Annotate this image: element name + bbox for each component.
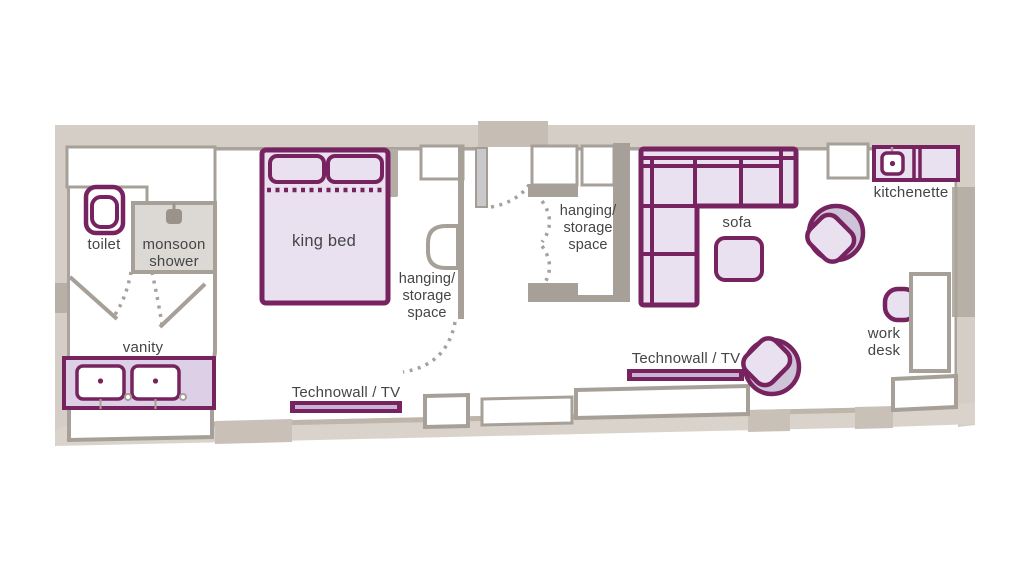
door-arc-dotted <box>114 272 131 316</box>
toilet-bowl <box>92 197 117 227</box>
entry-storage-label-2: storage <box>563 220 612 236</box>
technowall-stripe <box>632 373 739 377</box>
work-desk <box>911 274 949 371</box>
entry-living-wall <box>613 143 630 302</box>
desk-window <box>893 376 956 410</box>
technowall-living-label: Technowall / TV <box>632 350 741 367</box>
technowall-bedroom-label: Technowall / TV <box>292 384 401 401</box>
closet-wall-stub <box>528 184 578 197</box>
bed-pillow <box>328 156 382 182</box>
bottom-wall-segment <box>215 419 292 444</box>
ottoman <box>716 238 762 280</box>
kitchenette-recess <box>828 144 868 178</box>
toilet-label: toilet <box>88 236 122 253</box>
shower-head-icon <box>166 209 182 224</box>
tub-chair-icon <box>798 195 874 271</box>
wardrobe-door-arc <box>403 322 455 372</box>
sink-drain-dot <box>890 161 895 166</box>
sink-drain-dot <box>153 378 158 383</box>
vanity-label: vanity <box>123 339 164 356</box>
closet-recess <box>532 146 577 185</box>
right-wall-inner-edge <box>955 147 958 404</box>
sofa-label: sofa <box>722 214 752 231</box>
monsoon-shower-label-1: monsoon <box>142 236 205 253</box>
closet-bench <box>428 226 458 268</box>
sink-drain-dot <box>98 378 103 383</box>
bedroom-storage-label-2: storage <box>402 288 451 304</box>
technowall-stripe <box>295 405 397 409</box>
faucet-knob <box>125 394 131 400</box>
entry-threshold <box>478 121 548 147</box>
entry-door-icon <box>476 148 487 207</box>
bed-pillow <box>270 156 324 182</box>
living-window <box>576 386 748 418</box>
work-desk-label-1: work <box>867 325 901 342</box>
entry-storage-label-3: space <box>568 237 607 253</box>
bathroom <box>64 147 215 409</box>
entry-storage-label-1: hanging/ <box>560 203 617 219</box>
closet-wall-stub <box>528 283 578 296</box>
closet-recess <box>421 146 463 179</box>
bottom-wall-segment <box>855 406 893 429</box>
sectional-sofa <box>641 149 796 305</box>
door-swing-icon <box>160 284 205 327</box>
bottom-wall-segment <box>748 409 790 432</box>
left-wall-column <box>55 283 69 313</box>
bedroom-window <box>425 395 468 427</box>
closet-recess <box>582 146 614 185</box>
closet-door-arc <box>542 201 550 242</box>
door-arc-dotted <box>152 272 162 324</box>
kitchenette-label: kitchenette <box>874 184 949 201</box>
bedroom-storage-label-1: hanging/ <box>399 271 456 287</box>
closet-door-arc <box>542 246 550 287</box>
work-desk-label-2: desk <box>868 342 901 359</box>
corridor-window <box>482 397 572 425</box>
monsoon-shower-label-2: shower <box>149 253 199 270</box>
door-swing-icon <box>70 277 117 319</box>
floor-plan: toilet monsoon shower vanity king bed ha… <box>0 0 1024 576</box>
king-bed-label: king bed <box>292 232 356 250</box>
bedroom-storage-label-3: space <box>407 305 446 321</box>
faucet-knob <box>180 394 186 400</box>
floor-plan-canvas: toilet monsoon shower vanity king bed ha… <box>0 0 1024 576</box>
